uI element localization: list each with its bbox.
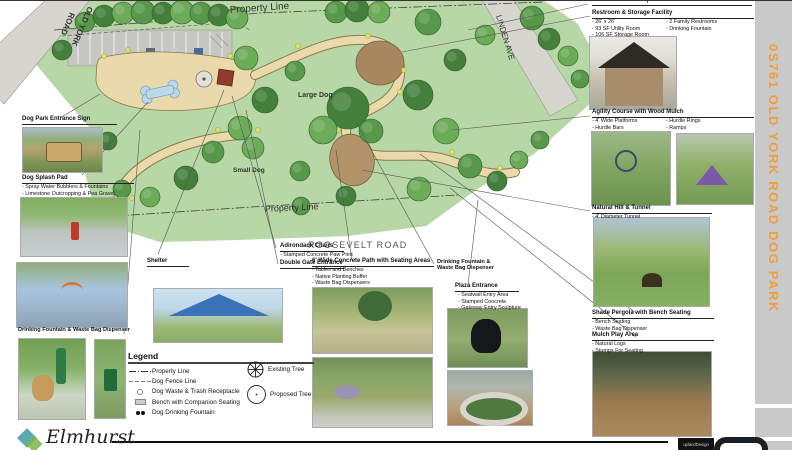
existing-tree-symbol	[246, 360, 265, 379]
sheet-title: 0S761 OLD YORK ROAD DOG PARK	[755, 44, 792, 380]
annotation-title: Adirondack Chairs	[280, 243, 344, 252]
bullet: - Bench Seating	[592, 319, 714, 326]
bullet: - Native Planting Buffer	[312, 274, 434, 281]
annotation-title: Natural Hill & Tunnel	[592, 205, 712, 214]
title-strip-segment	[755, 408, 792, 437]
photo-waste-bag-dispenser	[94, 339, 126, 419]
annotation-fountain-center: Drinking Fountain & Waste Bag Dispenser	[437, 259, 499, 272]
bullet: - 26' x 26'	[592, 19, 666, 26]
legend-label: Proposed Tree	[270, 391, 311, 398]
annotation-splash-pad: Dog Splash Pad - Spray Water Bubblers & …	[22, 175, 134, 197]
annotation-shelter: Shelter	[147, 258, 189, 267]
annotation-pergola: Shade Pergola with Bench Seating - Bench…	[592, 310, 714, 332]
bench-symbol	[135, 399, 146, 405]
photo-seatwall-planter	[447, 370, 533, 426]
annotation-restroom: Restroom & Storage Facility - 26' x 26' …	[592, 10, 754, 39]
photo-splash-pad-hydrant	[20, 197, 128, 257]
annotation-title: Dog Park Entrance Sign	[22, 116, 117, 125]
property-line-symbol	[129, 371, 151, 372]
bullet: - Drinking Fountain	[666, 26, 717, 33]
bullet: - Gateway Entry Sculpture	[455, 305, 519, 312]
annotation-entrance-sign: Dog Park Entrance Sign	[22, 116, 117, 125]
label-small-dog: Small Dog	[233, 167, 265, 174]
photo-concrete-path	[312, 287, 433, 354]
photo-dog-drinking-fountain	[18, 338, 86, 420]
bullet: - Seatwall Entry Area	[455, 292, 519, 299]
bullet: - 2 Family Restrooms	[666, 19, 717, 26]
fountain-symbol	[136, 411, 145, 415]
bullet: - Limestone Outcropping & Pea Gravel	[22, 191, 134, 198]
legend-label: Dog Waste & Trash Receptacle	[152, 388, 240, 395]
plan-board: Property Line OLD YORK ROAD LINDEN AVE L…	[0, 0, 800, 450]
upland-design-mark-icon	[714, 437, 768, 450]
photo-shelter-pavilion	[153, 288, 283, 343]
bullet: - Hurdle Rings	[666, 118, 700, 125]
photo-dog-sculpture	[447, 308, 528, 368]
annotation-title: 6' Wide Concrete Path with Seating Areas	[312, 258, 434, 267]
photo-restroom-building	[589, 36, 677, 110]
annotation-title: Mulch Play Area	[592, 332, 714, 341]
plaza-center	[202, 77, 205, 80]
bullet: - Stamped Concrete	[455, 299, 519, 306]
annotation-plaza-entrance: Plaza Entrance - Seatwall Entry Area - S…	[455, 283, 519, 312]
annotation-mulch-play: Mulch Play Area - Natural Logs - Stumps …	[592, 332, 714, 354]
annotation-fountain-left: Drinking Fountain & Waste Bag Dispenser	[18, 327, 132, 333]
legend-label: Property Line	[152, 368, 189, 375]
photo-agility-hurdle-rings	[591, 131, 671, 206]
annotation-title-line2: Waste Bag Dispenser	[437, 265, 499, 271]
bullet: - 4' Diameter Tunnel	[592, 214, 712, 221]
fence-line-symbol	[129, 381, 151, 382]
shelter-footprint	[217, 69, 234, 86]
bullet: - Spray Water Bubblers & Fountains	[22, 184, 134, 191]
legend-label: Bench with Companion Seating	[152, 399, 240, 406]
annotation-title: Dog Splash Pad	[22, 175, 134, 184]
legend-label: Existing Tree	[268, 366, 304, 373]
bullet: - Ramps	[666, 125, 700, 132]
bullet: - 4' Wide Platforms	[592, 118, 666, 125]
upland-design-logo: uplandDesign	[678, 438, 714, 450]
label-large-dog: Large Dog	[298, 92, 333, 99]
legend-label: Dog Drinking Fountain	[152, 409, 215, 416]
legend-label: Dog Fence Line	[152, 378, 196, 385]
annotation-title: Agility Course with Wood Mulch	[592, 109, 754, 118]
bottom-border-rule	[112, 441, 668, 443]
wood-mulch-area	[356, 41, 404, 85]
legend-item-proposed-tree: Proposed Tree	[246, 384, 311, 405]
elmhurst-logo-text: Elmhurst	[46, 426, 135, 448]
annotation-title: Drinking Fountain & Waste Bag Dispenser	[18, 327, 132, 333]
bullet: - Waste Bag Dispensers	[312, 280, 434, 287]
bullet: - Hurdle Bars	[592, 125, 666, 132]
annotation-concrete-path: 6' Wide Concrete Path with Seating Areas…	[312, 258, 434, 287]
annotation-title: Shelter	[147, 258, 189, 267]
annotation-agility: Agility Course with Wood Mulch - 4' Wide…	[592, 109, 754, 131]
photo-mulch-play-area	[592, 351, 712, 437]
bullet: - 106 SF Storage Room	[592, 32, 666, 39]
legend: Legend Property Line Dog Fence Line Dog …	[128, 351, 314, 418]
proposed-tree-symbol	[246, 384, 267, 405]
bullet: - Natural Logs	[592, 341, 714, 348]
bullet: - 93 SF Utility Room	[592, 26, 666, 33]
bullet: - Tables and Benches	[312, 267, 434, 274]
photo-hill-tunnel	[593, 217, 710, 307]
annotation-title: Plaza Entrance	[455, 283, 519, 292]
photo-native-planting	[312, 357, 433, 428]
legend-item-existing-tree: Existing Tree	[246, 360, 304, 379]
annotation-title: Restroom & Storage Facility	[592, 10, 754, 19]
annotation-title: Shade Pergola with Bench Seating	[592, 310, 714, 319]
receptacle-symbol	[137, 389, 143, 395]
annotation-hill-tunnel: Natural Hill & Tunnel - 4' Diameter Tunn…	[592, 205, 712, 221]
photo-splash-pad-hoops	[16, 262, 128, 328]
top-border-rule	[0, 0, 792, 1]
bullet: - Stumps For Seating	[592, 348, 714, 355]
legend-item-drinking-fountain: Dog Drinking Fountain	[128, 408, 314, 418]
photo-agility-ramp	[676, 133, 754, 205]
photo-dog-park-entrance-sign	[22, 127, 103, 173]
